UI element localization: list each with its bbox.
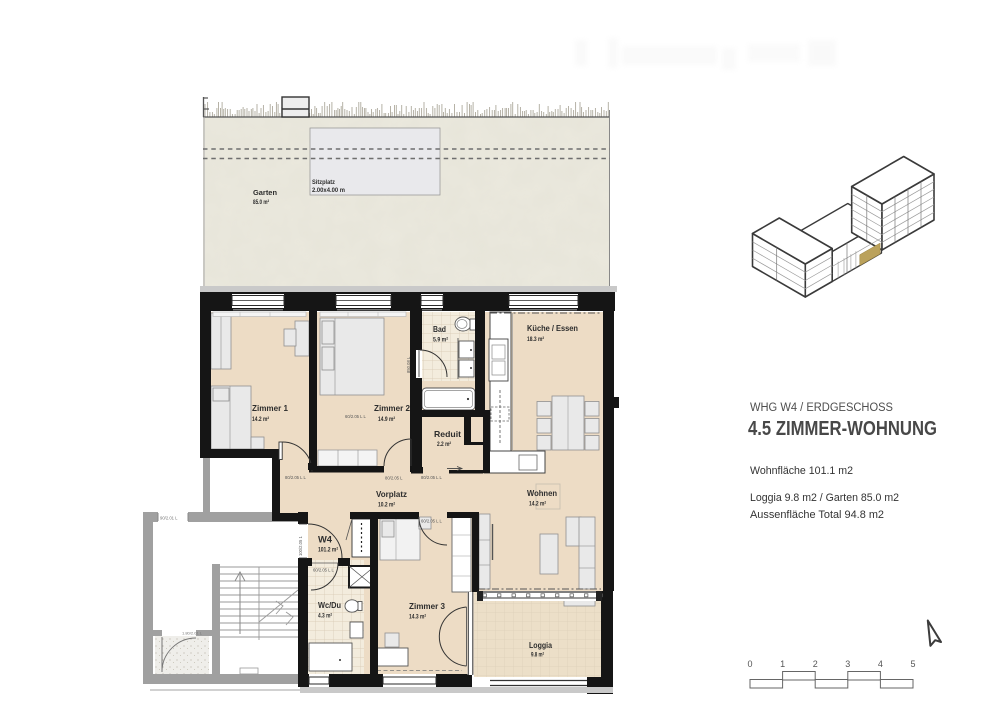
svg-text:Loggia 9.8 m2 / Garten 85.0 m2: Loggia 9.8 m2 / Garten 85.0 m2 xyxy=(750,492,899,504)
svg-text:85.0 m²: 85.0 m² xyxy=(253,199,269,206)
svg-text:Wohnen: Wohnen xyxy=(527,489,557,498)
svg-text:5.9 m²: 5.9 m² xyxy=(433,337,448,344)
svg-text:Loggia: Loggia xyxy=(529,641,552,650)
svg-text:0: 0 xyxy=(747,659,752,669)
svg-text:60/2.05 L L: 60/2.05 L L xyxy=(345,414,366,419)
svg-text:60/2.05 L L: 60/2.05 L L xyxy=(313,568,334,573)
svg-text:Garten: Garten xyxy=(253,188,277,197)
svg-text:14.3 m²: 14.3 m² xyxy=(409,614,426,621)
svg-text:80/2.05 L: 80/2.05 L xyxy=(385,476,403,481)
svg-text:4.3 m²: 4.3 m² xyxy=(318,613,332,620)
svg-text:Zimmer 1: Zimmer 1 xyxy=(252,404,288,413)
svg-text:2.00x4.00 m: 2.00x4.00 m xyxy=(312,187,345,194)
svg-text:Vorplatz: Vorplatz xyxy=(376,490,407,499)
svg-text:10.2 m²: 10.2 m² xyxy=(378,502,395,509)
svg-text:Reduit: Reduit xyxy=(434,430,461,439)
svg-text:3: 3 xyxy=(845,659,850,669)
svg-text:80/2.05 L L: 80/2.05 L L xyxy=(285,475,306,480)
svg-text:80/2.05 L L: 80/2.05 L L xyxy=(421,475,442,480)
svg-text:14.2 m²: 14.2 m² xyxy=(252,416,269,423)
svg-text:850.08 L: 850.08 L xyxy=(406,356,411,373)
svg-text:W4: W4 xyxy=(318,535,332,545)
svg-text:14.2 m²: 14.2 m² xyxy=(529,501,546,508)
svg-text:2.2 m²: 2.2 m² xyxy=(437,441,451,448)
svg-text:Zimmer 3: Zimmer 3 xyxy=(409,602,445,611)
svg-text:90/2.01 L: 90/2.01 L xyxy=(160,516,178,521)
svg-text:14.9 m²: 14.9 m² xyxy=(378,416,395,423)
svg-text:4.5 ZIMMER-WOHNUNG: 4.5 ZIMMER-WOHNUNG xyxy=(748,418,937,440)
svg-text:4: 4 xyxy=(878,659,883,669)
svg-text:2: 2 xyxy=(813,659,818,669)
svg-text:1.80/2.01 L: 1.80/2.01 L xyxy=(182,631,203,636)
svg-text:Aussenfläche Total 94.8 m2: Aussenfläche Total 94.8 m2 xyxy=(750,509,884,521)
svg-text:Zimmer 2: Zimmer 2 xyxy=(374,404,410,413)
svg-text:60/2.05 L L: 60/2.05 L L xyxy=(421,519,442,524)
svg-text:100/2.05 1: 100/2.05 1 xyxy=(298,536,303,556)
svg-text:18.3 m²: 18.3 m² xyxy=(527,336,544,343)
svg-text:WHG W4 / ERDGESCHOSS: WHG W4 / ERDGESCHOSS xyxy=(750,402,893,414)
svg-text:5: 5 xyxy=(910,659,915,669)
svg-text:Küche / Essen: Küche / Essen xyxy=(527,324,578,333)
svg-text:Bad: Bad xyxy=(433,325,446,334)
svg-text:1: 1 xyxy=(780,659,785,669)
svg-text:9.8 m²: 9.8 m² xyxy=(531,652,544,659)
svg-text:101.2 m²: 101.2 m² xyxy=(318,547,338,554)
svg-text:Wc/Du: Wc/Du xyxy=(318,601,341,610)
svg-text:Sitzplatz: Sitzplatz xyxy=(312,179,336,186)
svg-text:Wohnfläche 101.1 m2: Wohnfläche 101.1 m2 xyxy=(750,465,853,477)
